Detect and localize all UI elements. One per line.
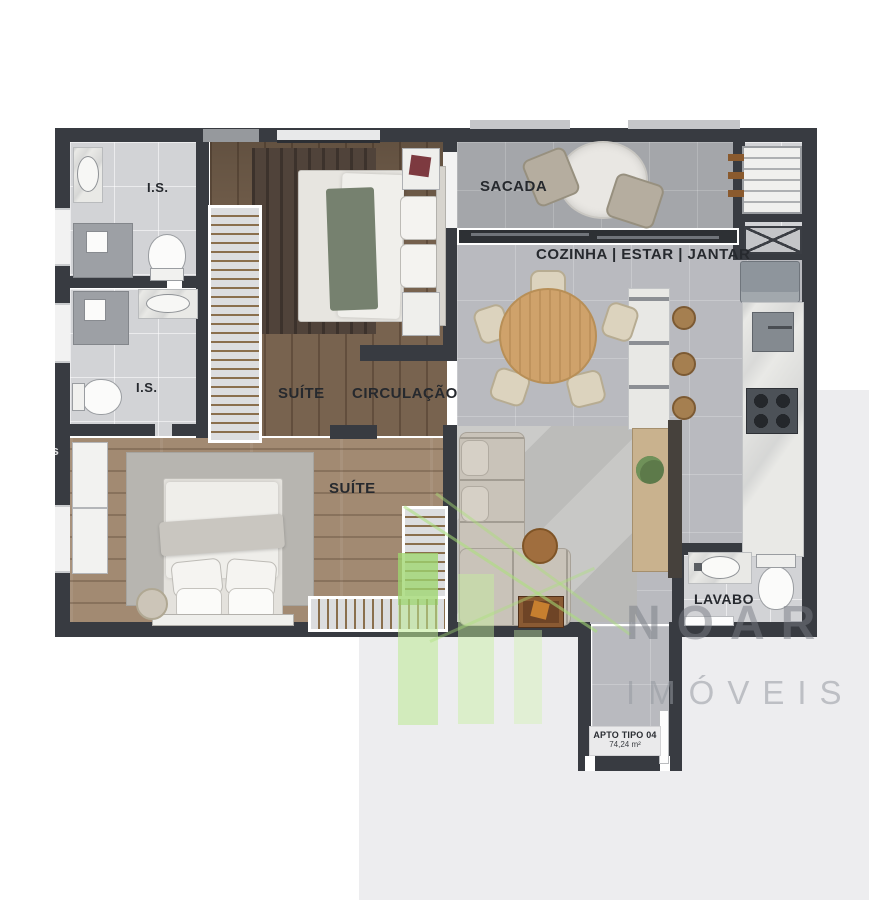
- label-bathroom2: I.S.: [136, 380, 158, 395]
- wall-circulation-stub: [360, 345, 457, 361]
- console-cabinet: [632, 428, 670, 572]
- grill-icon: [742, 146, 802, 214]
- bath1-sink-icon: [77, 156, 99, 192]
- grill-skewer-1: [728, 154, 744, 161]
- label-suite-lower: SUÍTE: [329, 480, 376, 497]
- wall-bath1-bottom-stub: [182, 276, 209, 288]
- label-suite-upper: SUÍTE: [278, 385, 325, 402]
- bed-upper-blanket: [326, 187, 378, 311]
- bath2-toilet-icon: [82, 379, 122, 415]
- bath2-sink-icon: [146, 294, 190, 313]
- nightstand-decor-icon: [409, 155, 432, 178]
- sliding-door: [457, 228, 739, 245]
- floorplan-image: APTO TIPO 04 74,24 m² I.S. I.S. SACADA C…: [0, 0, 869, 900]
- grill-skewer-3: [728, 190, 744, 197]
- wall-bath2-bottom: [55, 424, 155, 436]
- bath1-shower-head-icon: [86, 231, 108, 253]
- wall-top: [55, 128, 817, 142]
- kitchen-faucet-icon: [768, 326, 792, 329]
- bath2-toilet-tank: [72, 383, 85, 411]
- tall-cabinet: [668, 420, 682, 578]
- logo-green-bar-3: [514, 630, 542, 724]
- wall-bath2-bottom-stub: [172, 424, 209, 436]
- unit-label: APTO TIPO 04: [590, 730, 660, 740]
- wardrobe-lower-left2: [72, 508, 108, 574]
- lavabo-faucet-icon: [694, 563, 702, 571]
- stool-2-icon: [672, 352, 696, 376]
- pouf-icon: [136, 588, 168, 620]
- watermark-sub: IMÓVEIS: [626, 674, 855, 712]
- window-top-suite: [277, 130, 380, 143]
- dining-table-icon: [499, 288, 597, 384]
- sofa-back-cushion1: [461, 440, 489, 476]
- wall-grill-shelf: [733, 214, 803, 222]
- lavabo-sink-icon: [700, 556, 740, 579]
- plant-icon: [636, 456, 664, 484]
- nightstand-upper-2: [402, 292, 440, 336]
- sacada-sill-left: [470, 120, 570, 129]
- sliding-door-pane-right: [597, 236, 719, 239]
- sliding-door-pane-left: [471, 233, 589, 236]
- duct-icon: [744, 226, 802, 254]
- kitchen-sink-icon: [752, 312, 794, 352]
- bed-lower-headboard: [152, 614, 294, 626]
- unit-label-box: APTO TIPO 04 74,24 m²: [589, 726, 661, 756]
- window-left-2: [55, 303, 70, 363]
- unit-area: 74,24 m²: [590, 740, 660, 749]
- stool-1-icon: [672, 306, 696, 330]
- logo-green-bar-1-top: [398, 553, 438, 605]
- bed-upper-pillow1: [400, 196, 440, 240]
- logo-green-bar-2: [458, 574, 494, 724]
- window-left-3: [55, 505, 70, 573]
- watermark-brand: NOAR: [626, 596, 831, 651]
- label-kitchen-living: COZINHA | ESTAR | JANTAR: [536, 246, 750, 263]
- label-sacada: SACADA: [480, 178, 547, 195]
- label-circulation: CIRCULAÇÃO: [352, 385, 458, 402]
- hall-door-notch-left: [585, 756, 595, 771]
- wall-right: [802, 128, 817, 637]
- wall-circulation-lower-stub: [330, 425, 377, 439]
- grill-skewer-2: [728, 172, 744, 179]
- ac-ledge: [203, 129, 259, 142]
- window-left-1: [55, 208, 70, 266]
- wardrobe-lower-left: [72, 442, 108, 508]
- bath2-shower-head-icon: [84, 299, 106, 321]
- fridge-icon: [740, 261, 800, 303]
- bed-upper-pillow2: [400, 244, 440, 288]
- closet-wardrobe: [208, 205, 262, 443]
- lavabo-toilet-tank: [756, 554, 796, 568]
- watermark-edge-fragment: is: [48, 443, 59, 458]
- cooktop-icon: [746, 388, 798, 434]
- label-bathroom1: I.S.: [147, 180, 169, 195]
- sacada-sill-right: [628, 120, 740, 129]
- bath1-toilet-tank: [150, 268, 184, 281]
- stool-3-icon: [672, 396, 696, 420]
